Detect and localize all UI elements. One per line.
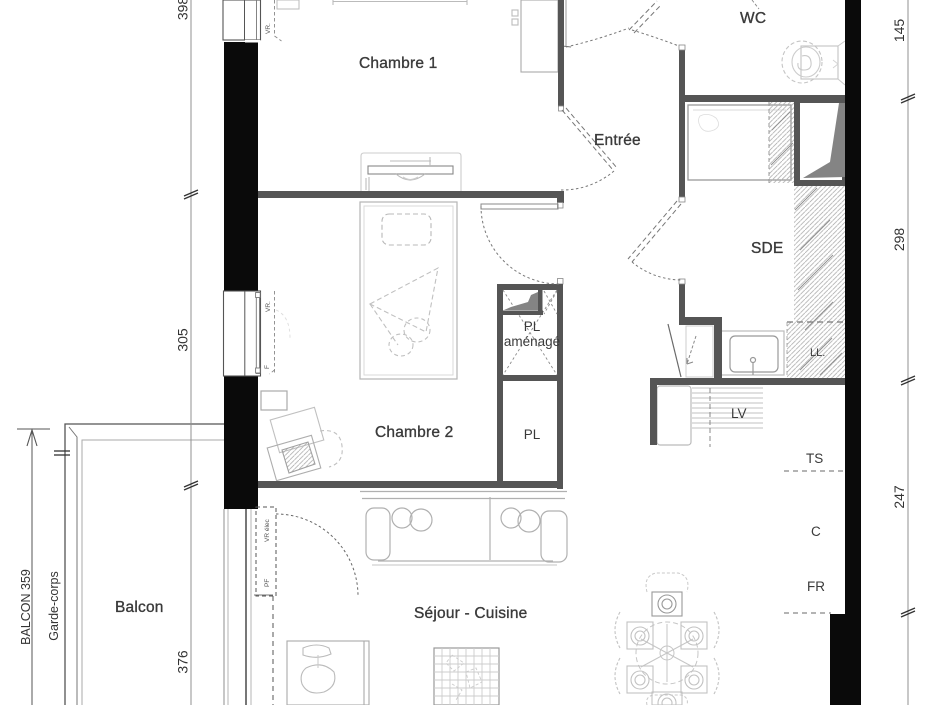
svg-text:398: 398 <box>175 0 191 20</box>
svg-text:VR.: VR. <box>265 301 272 312</box>
svg-text:PL: PL <box>524 427 541 442</box>
svg-text:298: 298 <box>891 228 907 252</box>
svg-text:F: F <box>264 365 271 369</box>
svg-text:SDE: SDE <box>751 240 783 257</box>
svg-text:BALCON 359: BALCON 359 <box>19 569 33 645</box>
svg-text:Garde-corps: Garde-corps <box>47 571 61 640</box>
svg-text:FR: FR <box>807 579 825 594</box>
svg-text:WC: WC <box>740 10 766 27</box>
svg-text:PF: PF <box>264 579 271 587</box>
svg-text:Séjour - Cuisine: Séjour - Cuisine <box>414 605 527 622</box>
svg-text:Chambre 1: Chambre 1 <box>359 55 437 72</box>
svg-text:305: 305 <box>175 328 191 352</box>
svg-text:PL: PL <box>524 319 541 334</box>
svg-text:Chambre 2: Chambre 2 <box>375 424 453 441</box>
svg-text:Balcon: Balcon <box>115 599 164 616</box>
svg-text:247: 247 <box>891 485 907 509</box>
svg-text:TS: TS <box>806 451 823 466</box>
svg-text:376: 376 <box>175 650 191 674</box>
svg-text:C: C <box>811 524 821 539</box>
svg-text:aménagé: aménagé <box>504 334 560 349</box>
svg-text:145: 145 <box>891 19 907 43</box>
svg-text:LL.: LL. <box>810 347 825 359</box>
svg-text:VR.: VR. <box>265 23 272 34</box>
svg-text:LV: LV <box>731 406 747 421</box>
svg-text:VR élec: VR élec <box>264 518 271 542</box>
svg-text:Entrée: Entrée <box>594 132 641 149</box>
